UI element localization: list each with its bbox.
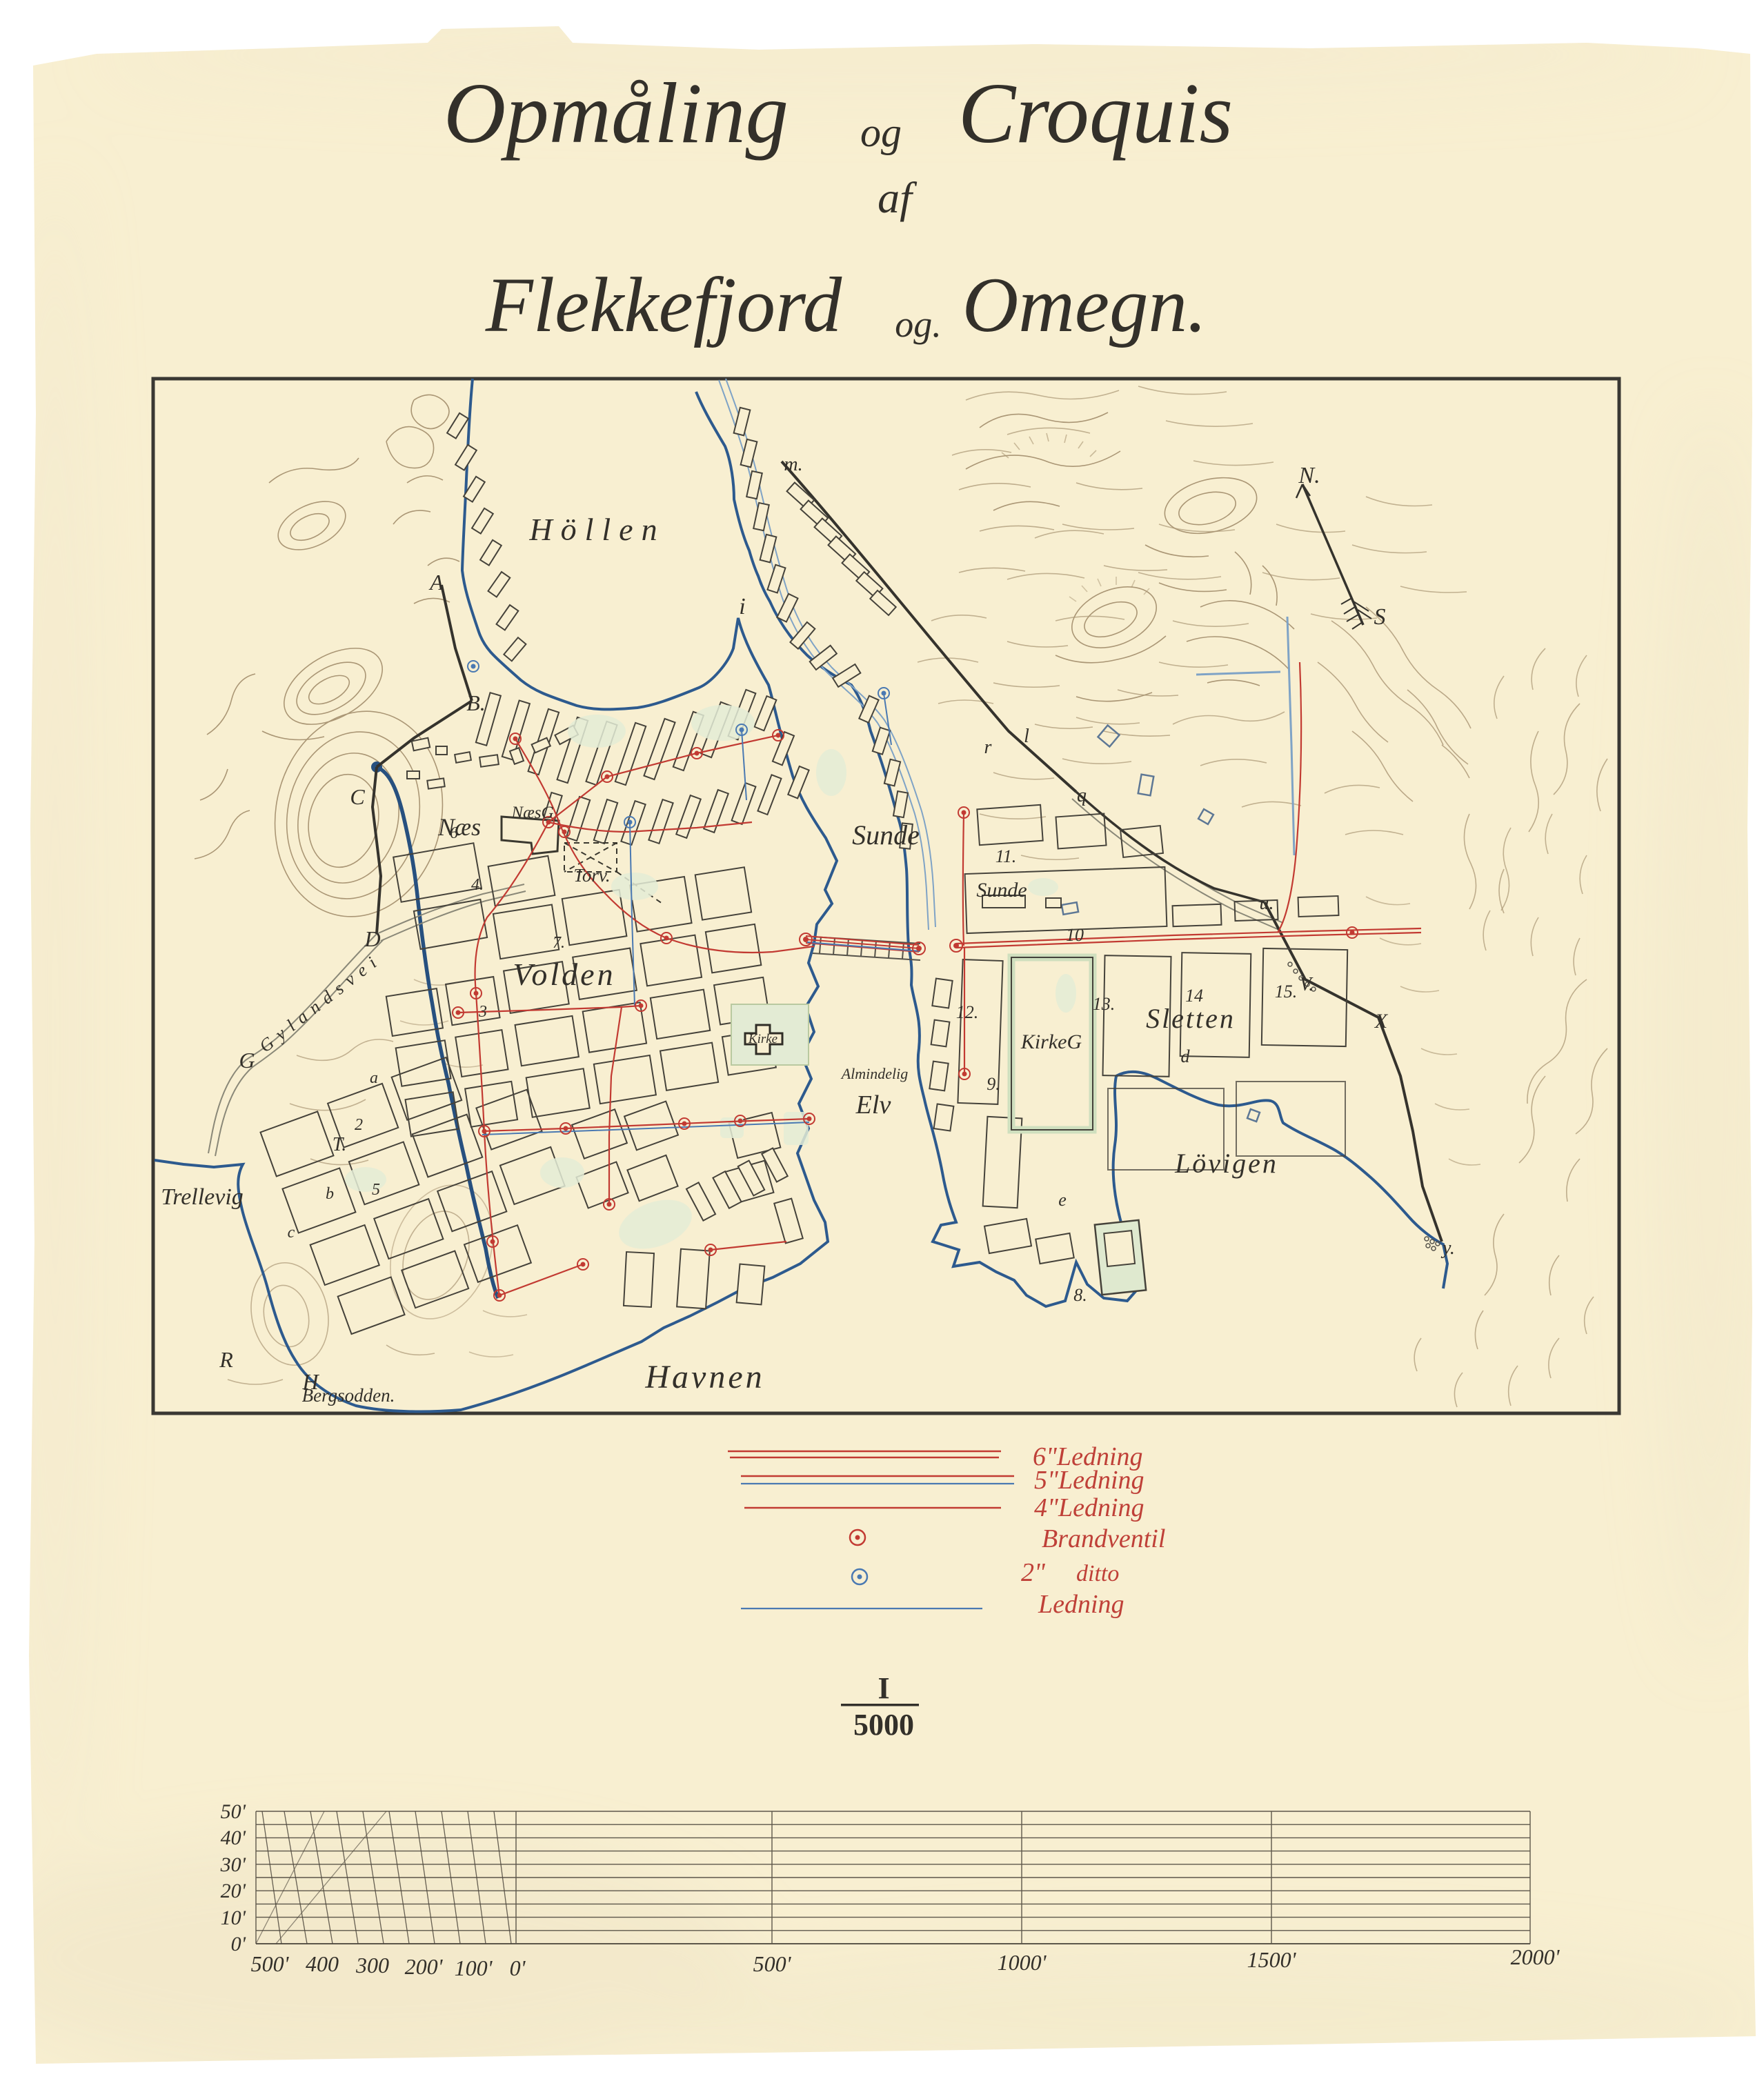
svg-text:0': 0' [510, 1955, 526, 1980]
svg-text:11.: 11. [995, 846, 1017, 866]
svg-text:2: 2 [355, 1116, 363, 1134]
svg-text:300: 300 [355, 1953, 389, 1978]
svg-text:Sletten: Sletten [1146, 1003, 1236, 1034]
svg-text:50': 50' [221, 1800, 246, 1823]
svg-text:S: S [1374, 604, 1386, 630]
svg-text:7.: 7. [553, 934, 565, 952]
svg-text:9.: 9. [987, 1074, 1000, 1094]
svg-text:10': 10' [221, 1906, 246, 1929]
svg-text:10: 10 [1066, 925, 1084, 945]
svg-text:og: og [860, 110, 902, 155]
svg-text:3: 3 [478, 1003, 487, 1021]
svg-text:T.: T. [333, 1134, 347, 1155]
svg-text:500': 500' [753, 1951, 792, 1976]
svg-text:4.: 4. [471, 876, 484, 894]
svg-text:H: H [301, 1369, 319, 1394]
svg-text:b: b [326, 1185, 334, 1203]
svg-text:ditto: ditto [1076, 1561, 1119, 1586]
svg-text:a: a [370, 1069, 378, 1087]
svg-text:y.: y. [1440, 1237, 1455, 1259]
svg-text:q: q [1077, 785, 1087, 806]
svg-text:Omegn.: Omegn. [962, 262, 1207, 348]
svg-text:C: C [350, 784, 365, 809]
svg-text:R: R [219, 1347, 233, 1372]
svg-text:A: A [428, 570, 444, 595]
svg-text:4"Ledning: 4"Ledning [1034, 1493, 1144, 1522]
svg-text:r: r [984, 737, 992, 758]
svg-text:Sunde: Sunde [976, 879, 1027, 902]
svg-text:8.: 8. [1073, 1285, 1087, 1305]
svg-text:V.: V. [1300, 974, 1314, 995]
svg-text:i: i [739, 594, 745, 619]
svg-text:5000: 5000 [853, 1708, 914, 1742]
svg-text:Lövigen: Lövigen [1174, 1148, 1278, 1179]
svg-text:40': 40' [221, 1826, 246, 1849]
svg-text:l: l [1024, 726, 1029, 747]
svg-text:Brandventil: Brandventil [1042, 1524, 1165, 1553]
svg-text:Almindelig: Almindelig [840, 1065, 909, 1082]
svg-text:KirkeG: KirkeG [1020, 1030, 1082, 1053]
svg-text:13.: 13. [1093, 994, 1116, 1014]
svg-text:Höllen: Höllen [528, 512, 665, 547]
svg-text:Ledning: Ledning [1038, 1590, 1124, 1619]
svg-text:0': 0' [231, 1933, 246, 1955]
svg-text:15.: 15. [1275, 982, 1298, 1002]
svg-text:d: d [1181, 1046, 1191, 1066]
svg-text:Torv.: Torv. [573, 865, 610, 886]
svg-text:c: c [288, 1224, 295, 1242]
svg-text:14: 14 [1185, 986, 1203, 1006]
svg-text:NæsG: NæsG [511, 804, 553, 822]
svg-text:X: X [1374, 1010, 1389, 1033]
svg-text:Sunde: Sunde [852, 819, 920, 850]
svg-text:Flekkefjord: Flekkefjord [485, 262, 842, 348]
svg-text:Croquis: Croquis [958, 66, 1233, 161]
svg-text:20': 20' [221, 1880, 246, 1902]
svg-text:B.: B. [466, 690, 486, 715]
svg-text:5: 5 [372, 1181, 380, 1199]
svg-text:1000': 1000' [998, 1950, 1047, 1975]
svg-text:200': 200' [405, 1954, 444, 1979]
svg-text:af: af [878, 173, 918, 222]
svg-text:e: e [1058, 1190, 1067, 1210]
svg-text:Næs: Næs [437, 813, 481, 841]
svg-text:Opmåling: Opmåling [444, 66, 789, 161]
svg-text:5"Ledning: 5"Ledning [1034, 1466, 1144, 1495]
svg-text:N.: N. [1298, 463, 1320, 488]
svg-text:6: 6 [450, 824, 458, 842]
svg-text:Elv: Elv [855, 1091, 891, 1119]
svg-text:500': 500' [251, 1951, 290, 1976]
svg-text:1500': 1500' [1247, 1947, 1297, 1972]
svg-text:Kirke: Kirke [748, 1032, 777, 1046]
svg-text:2": 2" [1021, 1558, 1046, 1587]
svg-text:Havnen: Havnen [644, 1359, 764, 1395]
svg-text:m.: m. [784, 454, 802, 475]
svg-text:og.: og. [895, 303, 942, 345]
svg-text:2000': 2000' [1511, 1944, 1560, 1969]
svg-text:G: G [239, 1048, 255, 1073]
svg-text:100': 100' [455, 1955, 493, 1980]
svg-text:30': 30' [220, 1853, 246, 1876]
svg-text:u.: u. [1260, 893, 1274, 914]
svg-text:12.: 12. [956, 1002, 979, 1022]
svg-text:D: D [364, 926, 380, 951]
svg-text:400: 400 [306, 1951, 339, 1976]
svg-text:Volden: Volden [513, 957, 615, 992]
svg-text:Trellevig: Trellevig [161, 1184, 244, 1210]
svg-text:I: I [878, 1671, 889, 1705]
